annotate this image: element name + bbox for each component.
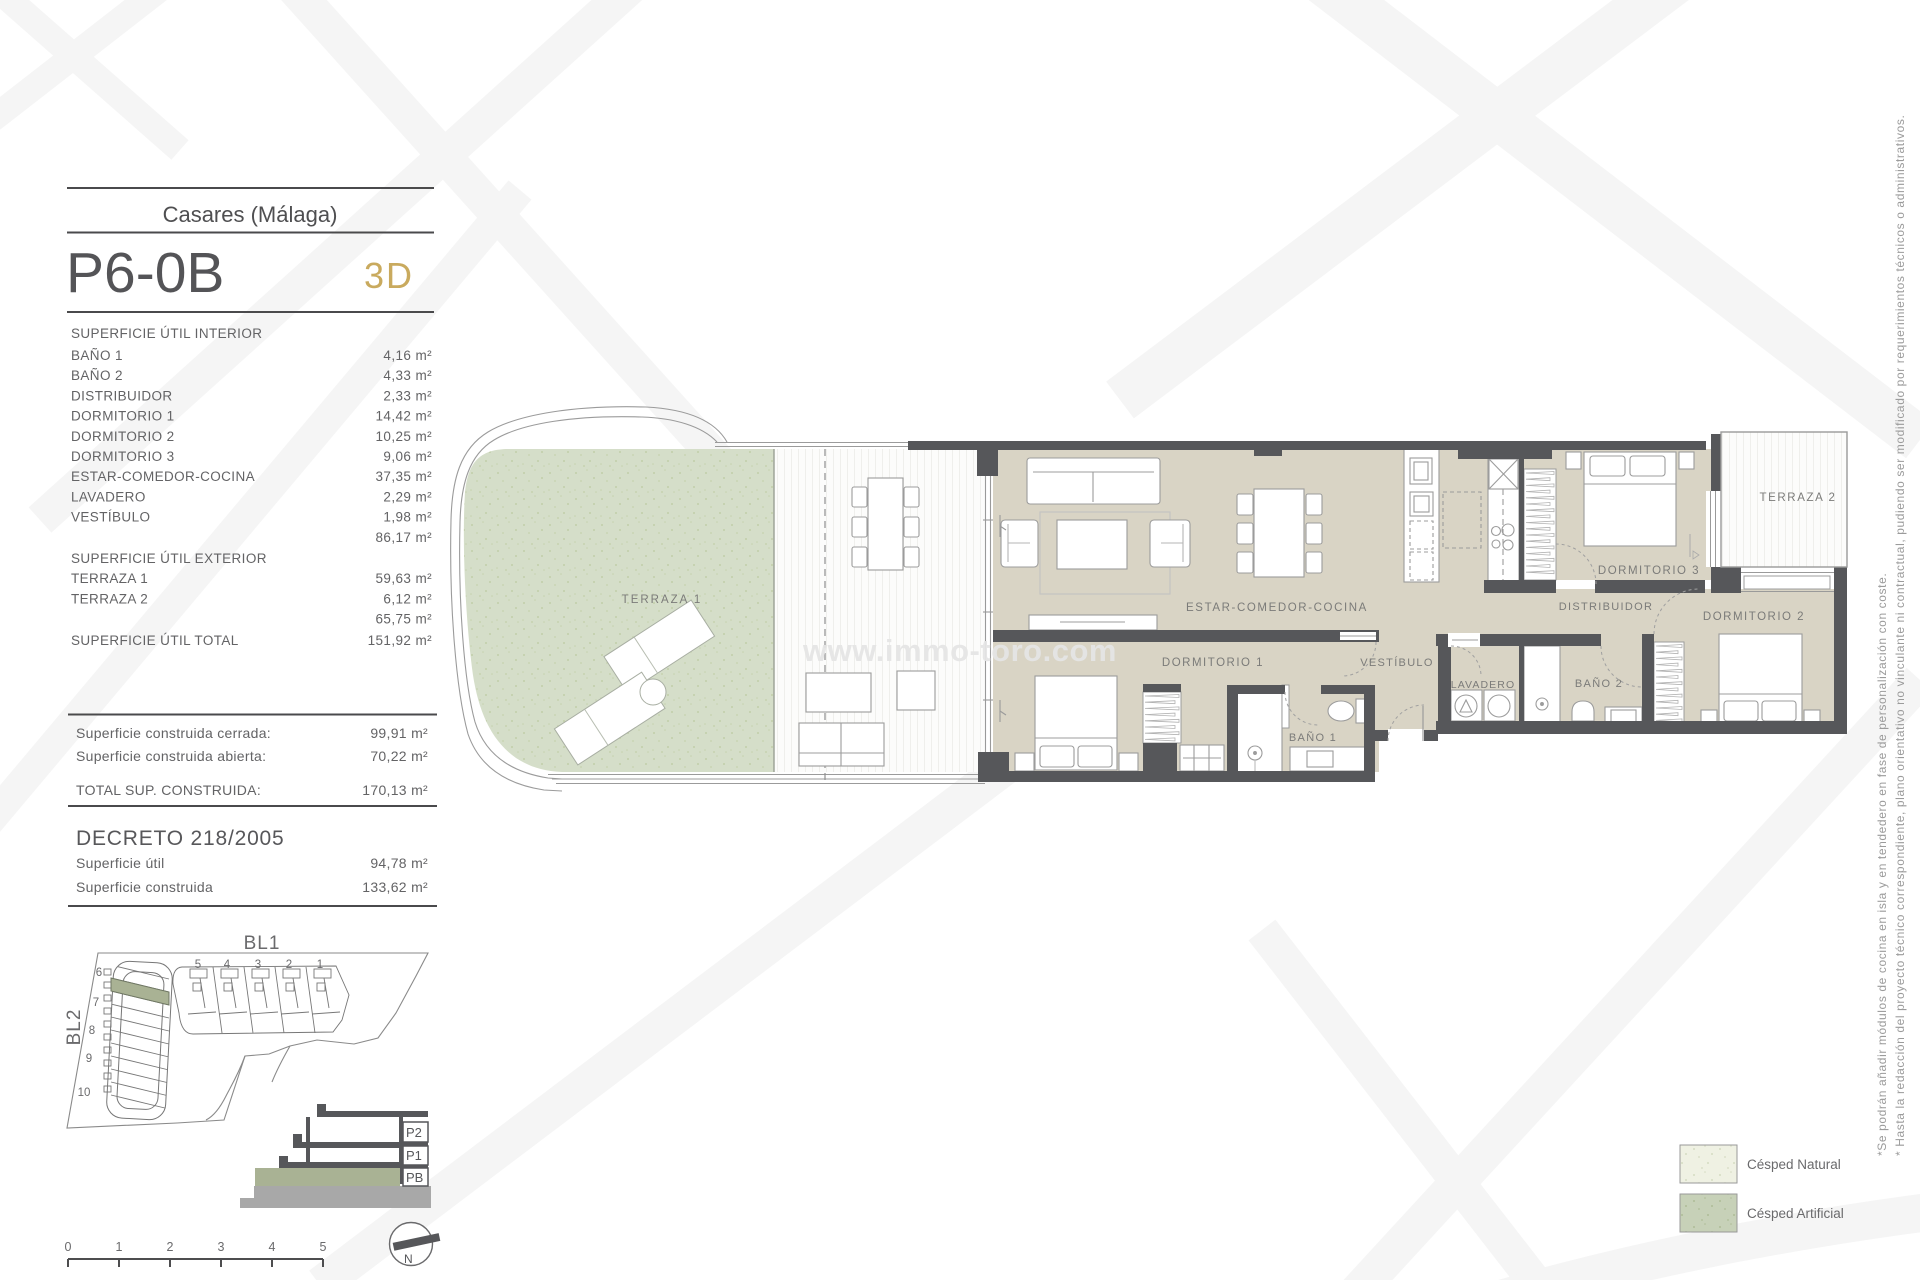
- svg-text:0: 0: [65, 1240, 72, 1254]
- svg-text:VESTÍBULO: VESTÍBULO: [1360, 656, 1433, 669]
- svg-text:1,98 m²: 1,98 m²: [383, 510, 432, 525]
- svg-text:170,13 m²: 170,13 m²: [362, 782, 428, 798]
- svg-text:65,75 m²: 65,75 m²: [376, 612, 433, 627]
- svg-text:DISTRIBUIDOR: DISTRIBUIDOR: [1559, 601, 1653, 613]
- svg-text:2: 2: [167, 1240, 174, 1254]
- svg-text:4: 4: [269, 1240, 276, 1254]
- svg-text:70,22 m²: 70,22 m²: [370, 748, 428, 764]
- svg-text:DORMITORIO 2: DORMITORIO 2: [1703, 611, 1805, 623]
- svg-text:DORMITORIO 3: DORMITORIO 3: [1598, 565, 1700, 577]
- svg-text:BL1: BL1: [244, 933, 281, 954]
- svg-text:3: 3: [255, 959, 261, 971]
- svg-text:10: 10: [78, 1087, 91, 1099]
- svg-text:TERRAZA 1: TERRAZA 1: [71, 571, 148, 586]
- svg-text:ESTAR-COMEDOR-COCINA: ESTAR-COMEDOR-COCINA: [1186, 602, 1368, 614]
- svg-text:99,91 m²: 99,91 m²: [370, 725, 428, 741]
- svg-text:BAÑO 2: BAÑO 2: [71, 368, 123, 383]
- svg-text:94,78 m²: 94,78 m²: [370, 855, 428, 871]
- svg-text:LAVADERO: LAVADERO: [71, 489, 146, 504]
- svg-text:DORMITORIO 1: DORMITORIO 1: [1162, 657, 1264, 669]
- svg-text:P2: P2: [406, 1125, 422, 1140]
- svg-text:TERRAZA 2: TERRAZA 2: [1759, 492, 1836, 504]
- svg-text:BAÑO 2: BAÑO 2: [1575, 677, 1623, 690]
- svg-text:9: 9: [86, 1053, 92, 1065]
- svg-text:5: 5: [320, 1240, 327, 1254]
- svg-text:59,63 m²: 59,63 m²: [376, 571, 433, 586]
- svg-text:2,29 m²: 2,29 m²: [383, 489, 432, 504]
- svg-text:6: 6: [96, 967, 102, 979]
- svg-text:4,16 m²: 4,16 m²: [383, 348, 432, 363]
- svg-text:7: 7: [93, 997, 99, 1009]
- svg-text:DORMITORIO 3: DORMITORIO 3: [71, 449, 175, 464]
- svg-text:3D: 3D: [364, 255, 414, 296]
- svg-text:TERRAZA 1: TERRAZA 1: [622, 594, 703, 606]
- svg-text:4: 4: [224, 959, 231, 971]
- svg-text:DISTRIBUIDOR: DISTRIBUIDOR: [71, 388, 173, 403]
- svg-text:BAÑO 1: BAÑO 1: [71, 348, 123, 363]
- svg-text:14,42 m²: 14,42 m²: [376, 409, 433, 424]
- svg-text:* Hasta la redacción del proye: * Hasta la redacción del proyecto técnic…: [1893, 115, 1907, 1156]
- svg-text:3: 3: [218, 1240, 225, 1254]
- svg-text:www.immo-toro.com: www.immo-toro.com: [802, 633, 1117, 668]
- svg-text:9,06 m²: 9,06 m²: [383, 449, 432, 464]
- svg-text:SUPERFICIE ÚTIL TOTAL: SUPERFICIE ÚTIL TOTAL: [71, 633, 239, 648]
- svg-text:SUPERFICIE ÚTIL INTERIOR: SUPERFICIE ÚTIL INTERIOR: [71, 326, 262, 341]
- svg-text:ESTAR-COMEDOR-COCINA: ESTAR-COMEDOR-COCINA: [71, 469, 255, 484]
- svg-text:4,33 m²: 4,33 m²: [383, 368, 432, 383]
- svg-text:2: 2: [286, 959, 292, 971]
- svg-text:Casares (Málaga): Casares (Málaga): [163, 202, 338, 227]
- svg-text:10,25 m²: 10,25 m²: [376, 429, 433, 444]
- svg-text:P1: P1: [406, 1148, 422, 1163]
- svg-text:37,35 m²: 37,35 m²: [376, 469, 433, 484]
- svg-text:86,17 m²: 86,17 m²: [376, 530, 433, 545]
- svg-text:Superficie útil: Superficie útil: [76, 855, 165, 871]
- svg-text:P6-0B: P6-0B: [66, 241, 224, 305]
- svg-text:*Se podrán añadir módulos de c: *Se podrán añadir módulos de cocina en i…: [1875, 573, 1889, 1156]
- svg-text:8: 8: [89, 1025, 95, 1037]
- svg-text:Césped Natural: Césped Natural: [1747, 1157, 1841, 1172]
- svg-text:151,92 m²: 151,92 m²: [368, 633, 432, 648]
- svg-text:TOTAL SUP. CONSTRUIDA:: TOTAL SUP. CONSTRUIDA:: [76, 782, 261, 798]
- svg-text:N: N: [404, 1252, 413, 1266]
- svg-text:Superficie construida cerrada:: Superficie construida cerrada:: [76, 725, 271, 741]
- svg-text:1: 1: [116, 1240, 123, 1254]
- svg-text:2,33 m²: 2,33 m²: [383, 388, 432, 403]
- svg-text:PB: PB: [406, 1170, 423, 1185]
- svg-text:Superficie construida: Superficie construida: [76, 879, 213, 895]
- svg-text:6,12 m²: 6,12 m²: [383, 591, 432, 606]
- svg-text:DORMITORIO 2: DORMITORIO 2: [71, 429, 175, 444]
- svg-text:BL2: BL2: [64, 1009, 85, 1046]
- svg-text:Superficie construida abierta:: Superficie construida abierta:: [76, 748, 266, 764]
- svg-text:5: 5: [195, 959, 201, 971]
- svg-text:VESTÍBULO: VESTÍBULO: [71, 510, 150, 525]
- svg-text:BAÑO 1: BAÑO 1: [1289, 731, 1337, 744]
- svg-text:LAVADERO: LAVADERO: [1451, 679, 1515, 691]
- svg-text:133,62 m²: 133,62 m²: [362, 879, 428, 895]
- svg-text:DORMITORIO 1: DORMITORIO 1: [71, 409, 175, 424]
- svg-text:SUPERFICIE ÚTIL EXTERIOR: SUPERFICIE ÚTIL EXTERIOR: [71, 551, 267, 566]
- svg-text:Césped Artificial: Césped Artificial: [1747, 1206, 1844, 1221]
- svg-text:DECRETO 218/2005: DECRETO 218/2005: [76, 827, 285, 850]
- svg-text:1: 1: [317, 959, 323, 971]
- svg-text:TERRAZA 2: TERRAZA 2: [71, 591, 148, 606]
